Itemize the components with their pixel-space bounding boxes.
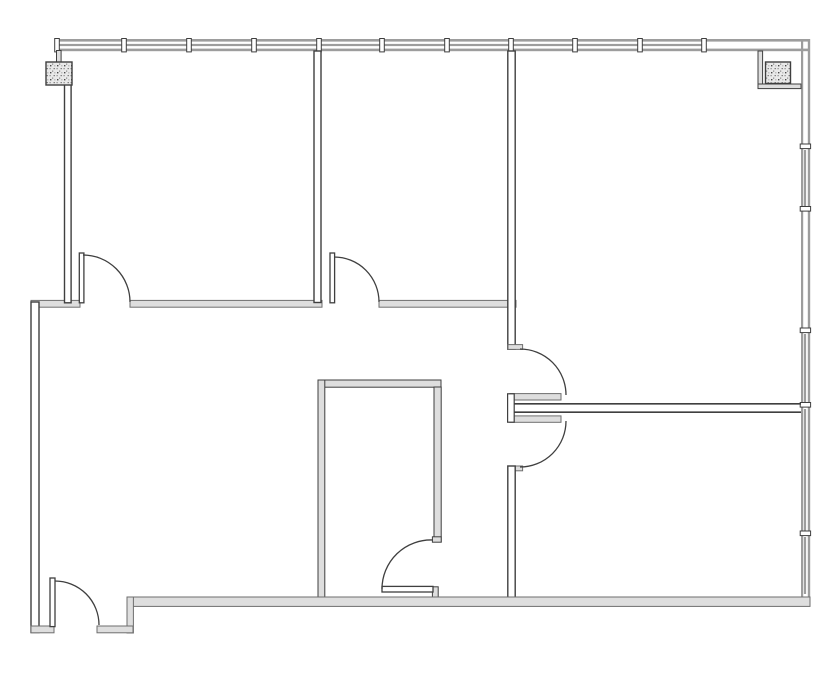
room1-door-leaf	[79, 253, 84, 303]
right-window-mullion	[800, 144, 810, 149]
closet-door-leaf	[382, 586, 433, 592]
right-window-wall-inner-line	[801, 39, 803, 601]
room2-door-leaf	[330, 253, 335, 303]
closet-west-wall	[318, 380, 325, 598]
column-nook-wall-horizontal	[758, 84, 801, 89]
room-divider-wall-right	[379, 300, 516, 307]
right-window-glazing-line	[804, 150, 806, 208]
top-window-mullion	[702, 39, 707, 52]
west-wall-upper	[65, 84, 72, 303]
left-column-stub	[57, 51, 62, 64]
right-window-mullion	[800, 207, 810, 212]
right-window-mullion	[800, 328, 810, 333]
top-window-wall-inner-line	[57, 49, 808, 52]
right-structural-column	[766, 62, 791, 84]
top-window-mullion	[252, 39, 257, 52]
right-window-glazing-line	[804, 409, 806, 531]
right-window-mullion	[800, 403, 810, 408]
top-window-mullion	[573, 39, 578, 52]
closet-east-wall-end-cap	[432, 537, 441, 542]
hall-divider-wall-end-cap	[508, 394, 515, 422]
left-structural-column	[46, 62, 72, 85]
partition-wall-room1-room2	[314, 51, 321, 303]
double-door-leaf-lower	[510, 416, 561, 422]
closet-east-wall	[434, 387, 441, 542]
top-window-mullion	[509, 39, 514, 52]
corridor-wall-lower	[508, 466, 515, 602]
corridor-wall-upper	[508, 51, 515, 349]
top-window-mullion	[638, 39, 643, 52]
top-window-mullion	[445, 39, 450, 52]
south-wall-entry-right	[97, 626, 133, 633]
right-window-wall-outer-line	[808, 39, 810, 601]
floor-plan-drawing	[0, 0, 835, 678]
west-wall-lower	[31, 302, 39, 633]
plan-background	[0, 0, 835, 678]
top-window-mullion	[122, 39, 127, 52]
double-door-leaf-upper	[510, 394, 561, 400]
column-nook-wall-vertical	[758, 51, 763, 89]
room-divider-wall-left	[130, 300, 322, 307]
entry-door-leaf	[50, 578, 55, 627]
right-window-mullion	[800, 531, 810, 536]
top-window-mullion	[187, 39, 192, 52]
top-window-wall-outer-line	[57, 39, 808, 42]
south-wall-main	[127, 597, 810, 606]
floor-plan-page	[0, 0, 835, 678]
right-window-glazing-line	[804, 537, 806, 594]
top-window-mullion	[317, 39, 322, 52]
top-window-mullion	[55, 39, 60, 52]
closet-top-wall	[318, 380, 441, 387]
top-window-mullion	[380, 39, 385, 52]
right-window-glazing-line	[804, 334, 806, 403]
